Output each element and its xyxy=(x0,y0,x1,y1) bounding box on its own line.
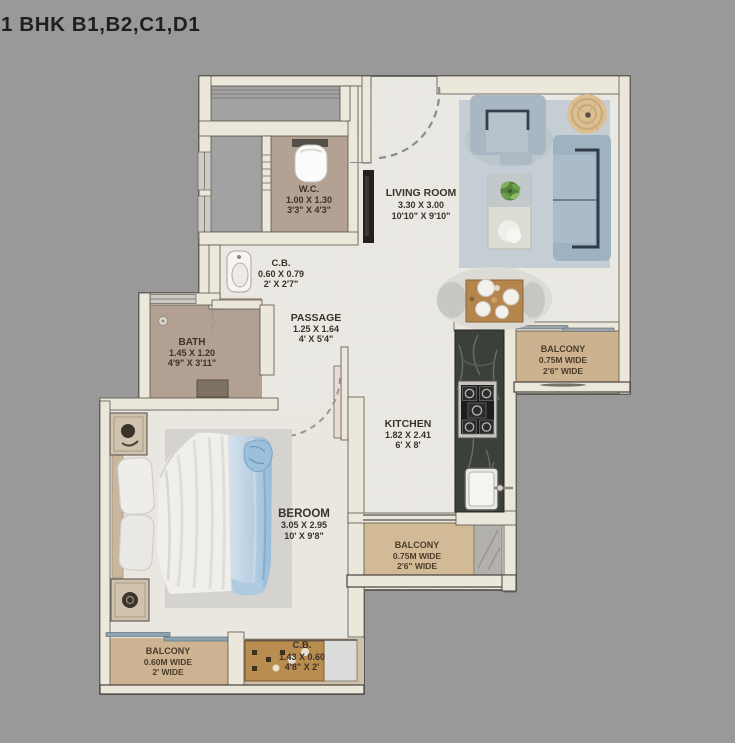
svg-text:1.82 X 2.41: 1.82 X 2.41 xyxy=(385,430,431,440)
svg-text:1.25 X 1.64: 1.25 X 1.64 xyxy=(293,324,339,334)
svg-text:4'9" X 3'11": 4'9" X 3'11" xyxy=(168,358,216,368)
svg-text:1 BHK B1,B2,C1,D1: 1 BHK B1,B2,C1,D1 xyxy=(1,13,200,36)
svg-text:KITCHEN: KITCHEN xyxy=(385,418,432,430)
svg-text:2'6" WIDE: 2'6" WIDE xyxy=(543,366,583,376)
svg-text:1.00 X 1.30: 1.00 X 1.30 xyxy=(286,195,332,205)
svg-text:0.60M WIDE: 0.60M WIDE xyxy=(144,657,193,667)
svg-text:6' X 8': 6' X 8' xyxy=(395,440,420,450)
svg-text:BALCONY: BALCONY xyxy=(146,646,191,656)
svg-text:3.30 X 3.00: 3.30 X 3.00 xyxy=(398,200,444,210)
svg-text:10'10" X 9'10": 10'10" X 9'10" xyxy=(392,211,451,221)
svg-text:W.C.: W.C. xyxy=(299,184,320,195)
svg-text:BALCONY: BALCONY xyxy=(395,540,440,550)
svg-text:3'3" X 4'3": 3'3" X 4'3" xyxy=(287,205,331,215)
svg-text:2'6" WIDE: 2'6" WIDE xyxy=(397,561,437,571)
svg-text:BEROOM: BEROOM xyxy=(278,508,330,520)
svg-text:2' X 2'7": 2' X 2'7" xyxy=(264,279,299,289)
svg-text:BALCONY: BALCONY xyxy=(541,344,586,354)
svg-text:4'8" X 2': 4'8" X 2' xyxy=(285,662,320,672)
svg-text:3.05 X 2.95: 3.05 X 2.95 xyxy=(281,520,327,530)
svg-text:1.43 X 0.60: 1.43 X 0.60 xyxy=(279,652,325,662)
svg-text:0.75M WIDE: 0.75M WIDE xyxy=(539,355,588,365)
svg-text:4' X 5'4": 4' X 5'4" xyxy=(299,334,334,344)
svg-text:0.60 X 0.79: 0.60 X 0.79 xyxy=(258,269,304,279)
svg-text:0.75M WIDE: 0.75M WIDE xyxy=(393,551,442,561)
svg-text:1.45 X 1.20: 1.45 X 1.20 xyxy=(169,348,215,358)
svg-text:C.B.: C.B. xyxy=(293,640,312,651)
svg-text:C.B.: C.B. xyxy=(272,258,291,269)
svg-text:PASSAGE: PASSAGE xyxy=(291,312,342,324)
svg-text:2' WIDE: 2' WIDE xyxy=(152,667,184,677)
svg-text:LIVING ROOM: LIVING ROOM xyxy=(386,187,457,199)
svg-text:BATH: BATH xyxy=(178,337,205,348)
svg-text:10' X 9'8": 10' X 9'8" xyxy=(284,531,324,541)
